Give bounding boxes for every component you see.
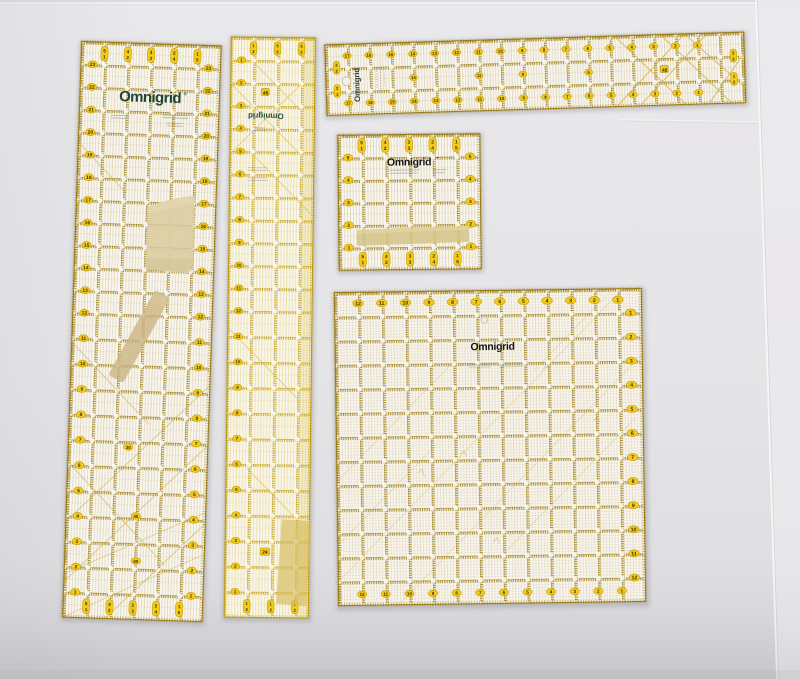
svg-text:17: 17 (345, 53, 351, 58)
svg-text:3: 3 (408, 140, 411, 146)
svg-text:5: 5 (347, 155, 350, 161)
svg-text:21: 21 (88, 107, 94, 113)
svg-text:10: 10 (499, 96, 505, 101)
svg-text:1: 1 (361, 260, 364, 266)
svg-text:14: 14 (199, 269, 205, 275)
svg-text:12: 12 (355, 301, 361, 307)
svg-text:Omnigrid: Omnigrid (248, 111, 284, 120)
svg-text:4: 4 (546, 299, 549, 305)
svg-text:24: 24 (262, 550, 268, 556)
svg-text:12: 12 (454, 50, 460, 55)
svg-text:16: 16 (201, 224, 207, 230)
svg-text:23: 23 (90, 62, 96, 68)
svg-text:8: 8 (632, 479, 635, 485)
svg-text:17: 17 (201, 201, 207, 207)
svg-text:11: 11 (379, 301, 385, 307)
svg-text:9: 9 (632, 503, 635, 509)
svg-text:14: 14 (411, 75, 416, 80)
svg-text:Omnigrid: Omnigrid (470, 341, 514, 354)
svg-text:16: 16 (366, 53, 372, 58)
svg-text:13: 13 (432, 51, 438, 56)
svg-text:8: 8 (451, 300, 454, 306)
svg-text:1: 1 (629, 311, 632, 317)
svg-text:14: 14 (412, 99, 418, 104)
svg-text:1: 1 (456, 253, 459, 259)
svg-text:10: 10 (80, 361, 86, 367)
svg-text:3: 3 (569, 298, 572, 304)
svg-text:17: 17 (85, 197, 91, 203)
svg-text:23: 23 (206, 66, 212, 72)
svg-text:45: 45 (263, 91, 269, 97)
svg-text:3: 3 (347, 200, 350, 206)
svg-text:12: 12 (236, 308, 242, 313)
svg-text:13: 13 (434, 98, 440, 103)
svg-text:2: 2 (385, 260, 388, 266)
svg-text:4: 4 (630, 383, 633, 389)
svg-text:12: 12 (360, 592, 366, 597)
svg-text:12: 12 (82, 310, 88, 316)
svg-text:Omnigrid: Omnigrid (119, 88, 182, 107)
svg-text:™: ™ (435, 156, 439, 161)
svg-text:9: 9 (427, 300, 430, 306)
svg-text:10: 10 (498, 49, 504, 54)
svg-text:21: 21 (204, 111, 210, 117)
svg-text:11: 11 (477, 73, 482, 78)
svg-text:5: 5 (455, 145, 458, 151)
svg-text:11: 11 (477, 97, 482, 102)
svg-text:17: 17 (346, 101, 352, 106)
svg-text:45: 45 (133, 514, 139, 519)
svg-text:5: 5 (360, 140, 363, 146)
svg-text:20: 20 (88, 130, 94, 136)
svg-text:2: 2 (593, 298, 596, 304)
svg-text:5: 5 (456, 259, 459, 265)
svg-text:45: 45 (662, 68, 668, 74)
svg-text:16: 16 (368, 100, 374, 105)
svg-text:4: 4 (432, 260, 435, 266)
svg-text:13: 13 (82, 288, 88, 294)
svg-text:15: 15 (388, 52, 394, 57)
svg-text:30: 30 (126, 445, 132, 450)
svg-text:10: 10 (235, 359, 241, 364)
svg-text:10: 10 (237, 263, 243, 268)
svg-text:11: 11 (197, 340, 203, 346)
svg-text:14: 14 (410, 51, 416, 56)
svg-text:15: 15 (200, 246, 206, 252)
svg-text:19: 19 (87, 152, 93, 158)
svg-text:10: 10 (631, 527, 637, 533)
svg-text:2: 2 (469, 222, 472, 228)
svg-text:12: 12 (631, 575, 637, 581)
svg-text:1: 1 (455, 139, 458, 145)
svg-text:15: 15 (390, 99, 396, 104)
svg-text:2: 2 (629, 334, 632, 340)
svg-text:16: 16 (85, 220, 91, 226)
svg-text:18: 18 (86, 175, 92, 181)
svg-text:3: 3 (469, 199, 472, 205)
svg-text:4: 4 (431, 146, 434, 152)
svg-text:19: 19 (203, 156, 209, 162)
svg-text:1: 1 (348, 245, 351, 251)
svg-text:7: 7 (475, 300, 478, 306)
svg-text:6: 6 (498, 299, 501, 305)
svg-text:10: 10 (402, 301, 408, 307)
svg-text:Omnigrid: Omnigrid (387, 156, 431, 168)
svg-text:18: 18 (202, 179, 208, 185)
svg-text:4: 4 (385, 254, 388, 260)
svg-text:3: 3 (630, 359, 633, 365)
svg-text:4: 4 (347, 178, 350, 184)
svg-text:11: 11 (631, 551, 637, 557)
svg-text:13: 13 (198, 292, 204, 298)
svg-text:10: 10 (196, 365, 202, 371)
svg-text:5: 5 (361, 254, 364, 260)
svg-text:4: 4 (384, 140, 387, 146)
svg-text:2: 2 (431, 140, 434, 146)
svg-text:12: 12 (198, 314, 204, 320)
svg-text:11: 11 (236, 285, 241, 290)
svg-text:6: 6 (631, 431, 634, 437)
svg-text:2: 2 (347, 223, 350, 229)
svg-text:15: 15 (84, 243, 90, 249)
svg-text:14: 14 (83, 265, 89, 271)
svg-text:Omnigrid: Omnigrid (352, 68, 362, 103)
svg-text:4: 4 (469, 177, 472, 183)
svg-text:1: 1 (470, 244, 473, 250)
svg-text:2: 2 (432, 254, 435, 260)
svg-text:22: 22 (89, 85, 95, 91)
svg-text:11: 11 (383, 592, 388, 597)
svg-text:3: 3 (408, 146, 411, 152)
svg-text:3: 3 (409, 254, 412, 260)
svg-text:5: 5 (631, 407, 634, 413)
svg-text:60: 60 (133, 559, 139, 564)
svg-text:11: 11 (236, 334, 241, 339)
svg-text:1: 1 (360, 146, 363, 152)
svg-text:11: 11 (476, 49, 481, 54)
svg-text:11: 11 (81, 336, 87, 342)
svg-text:2: 2 (384, 146, 387, 152)
svg-text:5: 5 (469, 154, 472, 160)
svg-text:12: 12 (455, 97, 461, 102)
svg-text:1: 1 (616, 298, 619, 304)
svg-text:3: 3 (409, 260, 412, 266)
svg-text:7: 7 (631, 455, 634, 461)
svg-text:10: 10 (407, 591, 413, 596)
svg-text:22: 22 (205, 88, 211, 94)
svg-text:5: 5 (522, 299, 525, 305)
svg-text:20: 20 (204, 134, 210, 140)
